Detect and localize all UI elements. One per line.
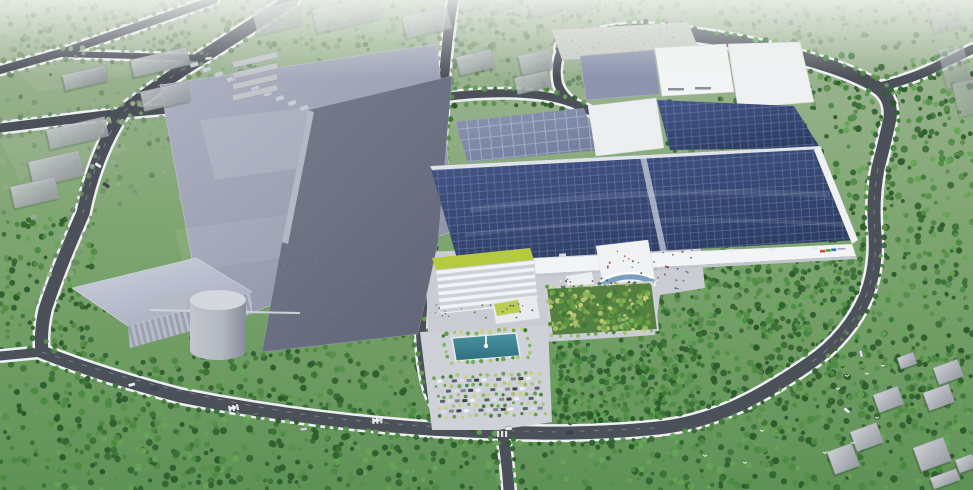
white-building-northwest: [588, 98, 664, 156]
aerial-rendering: [0, 0, 973, 490]
logo-mark-blue: [831, 248, 836, 251]
logo-mark-green: [826, 249, 831, 252]
fountain-splash: [484, 344, 488, 348]
atmospheric-haze: [0, 0, 973, 78]
logo-mark-red: [820, 250, 825, 253]
industrial-campus-scene: [0, 0, 973, 490]
warehouse-door: [668, 88, 684, 91]
silo-top: [190, 290, 246, 310]
warehouse-door: [695, 87, 711, 90]
plant-box: [158, 294, 186, 309]
